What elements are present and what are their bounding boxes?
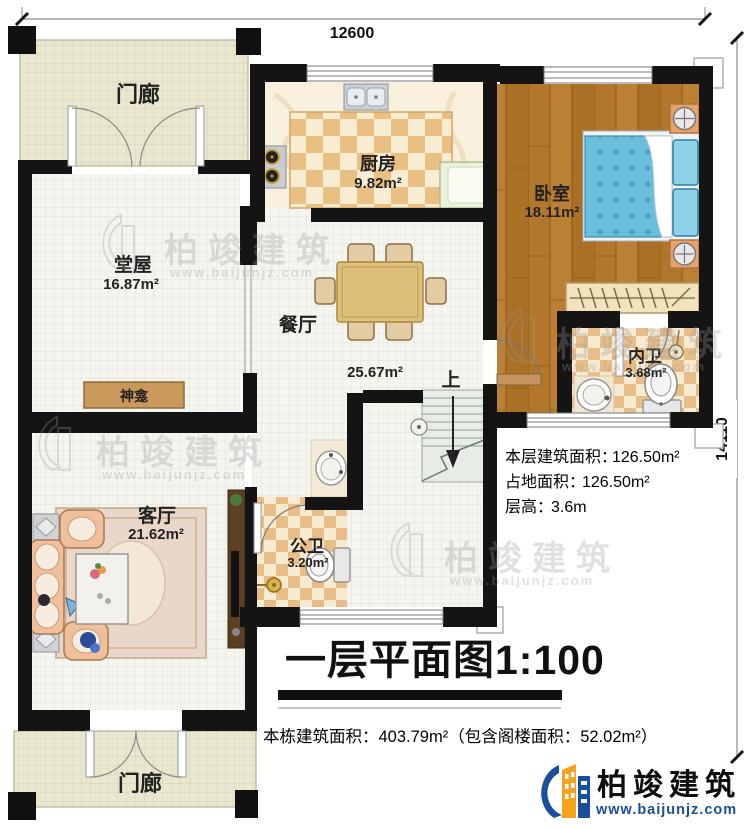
watermark-url: www.baijunjz.com — [169, 265, 314, 280]
brand-name: 柏竣建筑 — [597, 768, 741, 802]
watermark-url: www.baijunjz.com — [561, 359, 706, 374]
bed — [583, 131, 699, 241]
kitchen-sink — [344, 84, 388, 110]
dining-label: 餐厅 — [279, 313, 317, 336]
porch-top: 门廊 — [20, 40, 248, 166]
stat-land-area-value: 126.50m² — [582, 474, 650, 491]
brand-footer: 柏竣建筑 www.baijunjz.com — [541, 764, 741, 818]
coffee-table — [76, 554, 128, 624]
stat-floor-area-value: 126.50m² — [612, 449, 680, 466]
stat-height-value: 3.6m — [551, 499, 587, 516]
bedroom-window — [544, 67, 652, 83]
hall-floor — [32, 174, 240, 412]
shrine: 神龛 — [84, 382, 184, 408]
footer-note: 本栋建筑面积：403.79m²（包含阁楼面积：52.02m²） — [263, 727, 657, 746]
bedroom-hallway-floor — [497, 313, 557, 414]
nightstand-bottom — [670, 240, 699, 268]
kitchen-area: 9.82m² — [354, 175, 402, 192]
watermark-url: www.baijunjz.com — [101, 467, 246, 482]
bed-pillow-top — [673, 140, 698, 185]
kitchen-window — [307, 66, 433, 81]
hall-area: 16.87m² — [103, 276, 159, 293]
inner-bath-sink — [574, 376, 614, 414]
title-underline — [278, 690, 562, 700]
living-label: 客厅 — [138, 504, 176, 527]
stat-floor-area-label: 本层建筑面积： — [505, 448, 617, 466]
dimension-top-label: 12600 — [330, 25, 375, 42]
plan-title: 一层平面图1:100 — [285, 637, 605, 683]
wardrobe — [566, 283, 699, 313]
stat-height-label: 层高： — [505, 498, 553, 516]
porch-bottom-label: 门廊 — [118, 771, 162, 796]
brand-website: www.baijunjz.com — [595, 802, 737, 818]
watermark-url: www.baijunjz.com — [449, 573, 594, 588]
bedroom-area: 18.11m² — [524, 204, 579, 221]
dining-area: 25.67m² — [347, 364, 403, 381]
porch-top-label: 门廊 — [116, 82, 160, 107]
public-bath-area: 3.20m² — [287, 555, 329, 570]
stat-land-area-label: 占地面积： — [505, 473, 585, 491]
inner-bath-window — [527, 413, 670, 427]
living-area: 21.62m² — [128, 526, 184, 543]
nightstand-top — [670, 104, 699, 133]
floor-plan-page: 12600 14110 门廊 门廊 — [0, 0, 750, 829]
stairs-up-label: 上 — [441, 369, 460, 391]
floor-drain-dot — [417, 425, 421, 429]
title-underline-thin — [278, 707, 561, 709]
floor-plan: 12600 14110 门廊 门廊 — [0, 0, 750, 829]
dining-window — [300, 610, 443, 624]
kitchen-label: 厨房 — [360, 153, 396, 174]
shrine-label: 神龛 — [120, 388, 149, 404]
bed-pillow-bottom — [673, 189, 698, 236]
bedroom-label: 卧室 — [534, 183, 570, 204]
stairs-floor — [422, 390, 487, 482]
public-bath-label: 公卫 — [290, 537, 324, 556]
niche-sink — [316, 451, 346, 485]
